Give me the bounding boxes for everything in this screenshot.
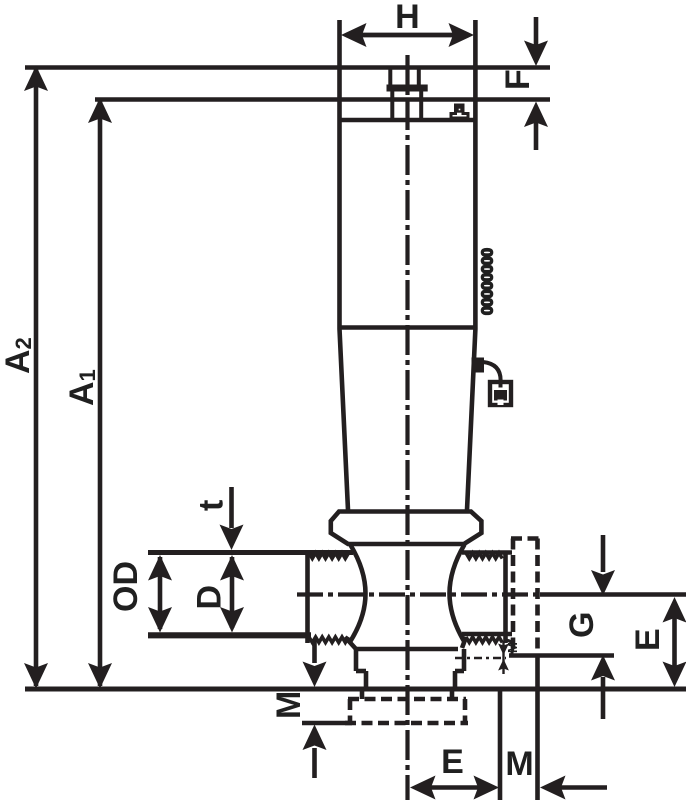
svg-text:F: F (499, 69, 537, 90)
svg-text:M: M (505, 745, 533, 783)
svg-text:M: M (505, 642, 520, 653)
svg-text:OD: OD (107, 561, 145, 612)
svg-text:E: E (629, 628, 667, 651)
svg-text:E: E (441, 743, 464, 781)
svg-text:00000000: 00000000 (480, 248, 497, 315)
svg-text:A1: A1 (63, 369, 101, 406)
svg-text:M: M (270, 691, 308, 719)
svg-text:H: H (395, 0, 420, 36)
svg-text:A2: A2 (0, 337, 37, 374)
svg-text:D: D (191, 585, 229, 610)
svg-text:G: G (563, 612, 601, 638)
svg-text:t: t (193, 500, 231, 511)
